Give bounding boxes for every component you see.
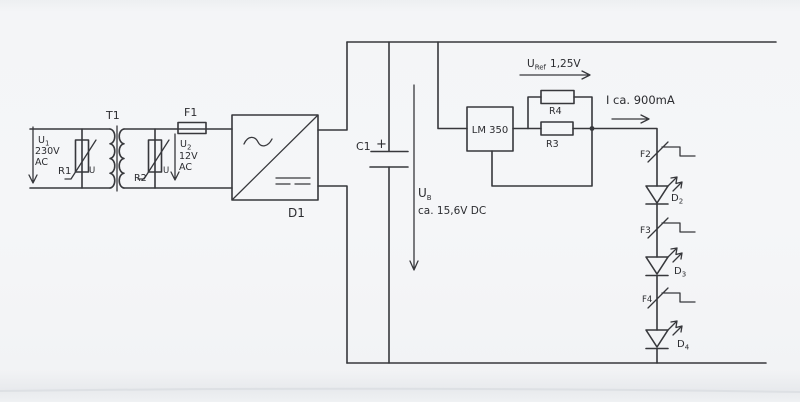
t1-label: T1	[105, 109, 120, 122]
led-d4-label: D4	[677, 339, 690, 352]
fuse-f4-label: F4	[642, 295, 652, 305]
led-d4-emission-arrows-icon	[668, 321, 682, 335]
d1-minus-output-wire	[318, 186, 347, 363]
r2-u-mark: U	[163, 166, 169, 176]
u1-voltage-label: 230V	[35, 146, 60, 157]
scanned-schematic-page: U1 230V AC R1 U T1 R2 U U2 12V AC F1	[0, 0, 800, 402]
u2-kind-label: AC	[179, 162, 192, 173]
fuse-f3-label: F3	[640, 226, 651, 236]
r1-u-mark: U	[89, 166, 95, 176]
resistor-r3-body	[541, 122, 573, 135]
ub-value-label: ca. 15,6V DC	[418, 205, 486, 217]
lm350-label: LM 350	[472, 125, 508, 136]
uref-arrow	[520, 71, 590, 79]
varistor-r1: R1 U	[58, 129, 96, 188]
current-label: I ca. 900mA	[606, 93, 675, 107]
led-d3: D3	[646, 248, 686, 279]
dc-symbol-icon	[276, 178, 310, 184]
led-d2-triangle	[646, 186, 668, 203]
r3-label: R3	[546, 139, 559, 150]
fuse-f1-body	[178, 123, 206, 134]
fuse-f1-label: F1	[184, 106, 197, 119]
led-d3-triangle	[646, 257, 668, 274]
secondary-side: R2 U U2 12V AC F1	[124, 106, 232, 188]
r1-label: R1	[58, 166, 71, 177]
ub-label: UB	[418, 186, 432, 202]
adjust-feedback-wire	[492, 131, 592, 186]
u2-label: U2	[180, 139, 191, 152]
d1-diagonal	[233, 116, 317, 199]
bridge-rectifier-d1: D1	[232, 42, 347, 363]
lm350-input-wire	[438, 42, 467, 129]
fuse-f2: F2	[640, 142, 695, 162]
led-d3-emission-arrows-icon	[668, 248, 682, 262]
circuit-diagram: U1 230V AC R1 U T1 R2 U U2 12V AC F1	[0, 0, 800, 402]
fuse-f4-symbol	[648, 288, 695, 308]
transformer-t1: T1	[105, 109, 124, 191]
fuse-f3: F3	[640, 218, 695, 238]
u1-kind-label: AC	[35, 157, 48, 168]
c1-label: C1	[356, 140, 371, 153]
c1-plus-sign: +	[376, 137, 387, 152]
d1-plus-output-wire	[318, 42, 347, 130]
regulator-lm350: LM 350 R3 R4 URef1,25V I ca. 900mA	[438, 42, 675, 186]
fuse-f4: F4	[642, 288, 695, 308]
led-d4-triangle	[646, 330, 668, 347]
d1-label: D1	[288, 206, 305, 220]
led-d4: D4	[646, 321, 690, 352]
u2-voltage-label: 12V	[179, 151, 198, 162]
led-d2-emission-arrows-icon	[668, 177, 682, 191]
led-d2-label: D2	[671, 193, 683, 206]
led-chain-wire	[592, 129, 657, 364]
ub-voltage: UB ca. 15,6V DC	[410, 85, 486, 270]
led-d2: D2	[646, 177, 683, 206]
primary-winding	[110, 129, 115, 188]
led-chain: F2 D2 F3 D3 F4 D4	[592, 129, 695, 364]
fuse-f2-symbol	[648, 142, 695, 162]
fuse-f2-label: F2	[640, 150, 651, 160]
r4-label: R4	[549, 106, 562, 117]
r2-label: R2	[134, 173, 147, 184]
resistor-r4-body	[541, 91, 574, 104]
led-d3-label: D3	[674, 266, 686, 279]
paper-crease	[0, 389, 800, 392]
u2-voltage-arrow	[171, 134, 179, 180]
uref-label: URef1,25V	[527, 58, 581, 72]
ac-tilde-icon	[244, 137, 272, 145]
secondary-winding	[119, 129, 124, 188]
current-arrow	[612, 115, 649, 123]
fuse-f3-symbol	[648, 218, 695, 238]
capacitor-c1: C1 +	[356, 42, 408, 363]
ub-voltage-arrow	[410, 85, 418, 270]
